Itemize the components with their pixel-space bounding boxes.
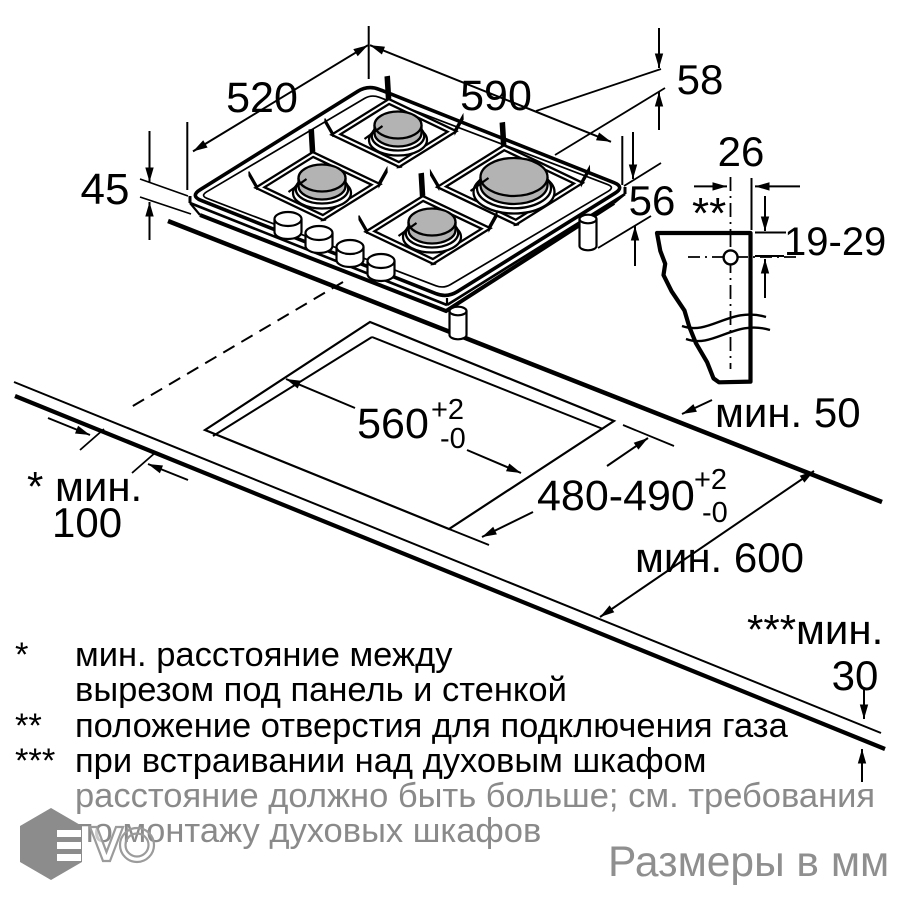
svg-text:45: 45 <box>81 165 130 214</box>
svg-text:*: * <box>15 636 28 674</box>
svg-text:19-29: 19-29 <box>784 220 886 264</box>
svg-text:мин. 50: мин. 50 <box>715 389 861 436</box>
svg-text:мин. 600: мин. 600 <box>635 534 804 581</box>
svg-text:+2: +2 <box>694 464 727 496</box>
svg-text:480-490: 480-490 <box>537 472 695 520</box>
svg-text:26: 26 <box>718 128 765 175</box>
svg-text:520: 520 <box>226 74 298 122</box>
svg-text:30: 30 <box>832 652 879 699</box>
svg-text:расстояние должно быть больше;: расстояние должно быть больше; см. требо… <box>75 777 875 815</box>
svg-text:58: 58 <box>677 56 724 103</box>
svg-text:положение отверстия для подклю: положение отверстия для подключения газа <box>75 707 789 745</box>
svg-text:***: *** <box>15 742 55 780</box>
svg-text:Размеры в мм: Размеры в мм <box>608 839 889 886</box>
svg-text:560: 560 <box>357 400 429 448</box>
svg-text:-0: -0 <box>440 423 466 455</box>
svg-text:100: 100 <box>52 499 122 546</box>
svg-text:мин. расстояние между: мин. расстояние между <box>75 636 453 674</box>
svg-text:при встраивании над духовым шк: при встраивании над духовым шкафом <box>75 742 707 780</box>
svg-text:-0: -0 <box>702 497 728 529</box>
svg-text:590: 590 <box>460 72 532 120</box>
svg-text:**: ** <box>692 189 726 238</box>
svg-text:вырезом под панель и стенкой: вырезом под панель и стенкой <box>75 671 567 709</box>
svg-text:56: 56 <box>629 177 676 224</box>
svg-text:+2: +2 <box>431 394 464 426</box>
svg-text:***мин.: ***мин. <box>747 606 883 653</box>
svg-text:**: ** <box>15 707 42 745</box>
